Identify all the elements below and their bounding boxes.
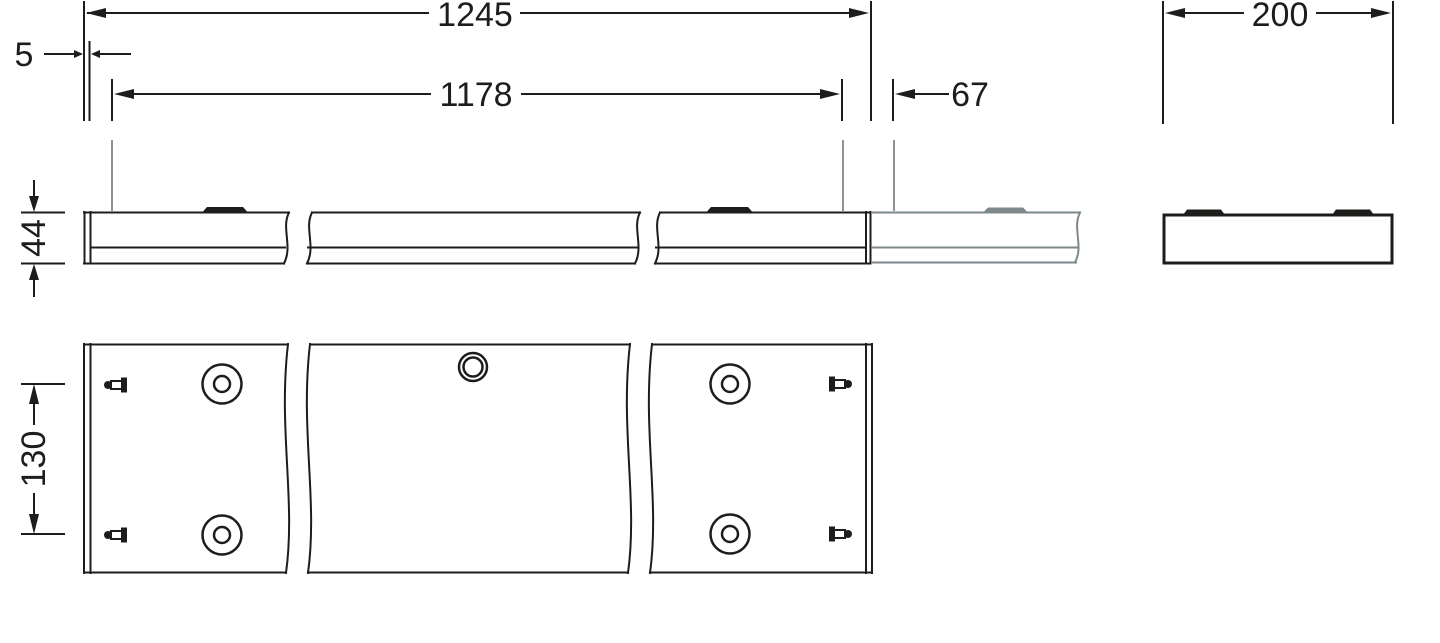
right-end-offset-label: 67: [951, 76, 989, 114]
keyhole-slot-bottom-right: [829, 527, 852, 542]
height-label: 44: [15, 219, 53, 257]
cable-entry-inner: [464, 358, 483, 377]
row-continuation-gray: [872, 208, 1080, 263]
overall-length-label: 1245: [437, 0, 513, 34]
suspension-distance-label: 1178: [439, 76, 512, 114]
technical-drawing-page: 1245 5 1178 67 200: [0, 0, 1440, 643]
arrowhead-up-icon: [29, 264, 39, 280]
top-clip-gray: [984, 208, 1027, 212]
keyhole-slot-bottom-left: [104, 528, 127, 543]
break-line-gray: [1075, 213, 1080, 263]
arrowhead-left-icon: [114, 89, 134, 99]
arrowhead-left-pointing-icon: [895, 89, 915, 99]
arrowhead-down-icon: [29, 514, 39, 534]
break-line: [649, 344, 653, 573]
suspension-hole-bottom-left: [203, 516, 242, 555]
dim-width: 200: [1163, 0, 1393, 123]
left-end-offset-label: 5: [15, 36, 34, 74]
arrowhead-right-icon: [849, 8, 869, 18]
cable-entry-hole: [459, 353, 487, 381]
break-line: [655, 213, 660, 264]
break-line: [284, 213, 289, 264]
width-label: 200: [1252, 0, 1309, 34]
break-line: [307, 344, 311, 573]
dim-height: 44: [15, 181, 64, 296]
dim-right-end-offset: 67: [893, 76, 989, 120]
arrowhead-right-icon: [1371, 8, 1391, 18]
arrowhead-right-icon: [820, 89, 840, 99]
housing-outline: [1164, 215, 1392, 263]
break-line: [635, 213, 640, 264]
dim-hole-spacing: 130: [15, 384, 64, 534]
suspension-hole-bottom-right: [711, 515, 750, 554]
top-clip-right: [707, 207, 752, 212]
top-clip-left: [203, 207, 247, 212]
keyhole-slot-top-right: [829, 377, 852, 392]
break-line: [285, 344, 289, 573]
arrowhead-left-icon: [86, 8, 106, 18]
end-view: [1164, 210, 1392, 264]
dim-suspension-distance: 1178: [112, 76, 842, 120]
keyhole-slot-top-left: [104, 378, 127, 393]
break-line: [307, 213, 312, 264]
arrowhead-left-icon: [1165, 8, 1185, 18]
arrowhead-right-pointing-icon: [74, 50, 83, 58]
arrowhead-left-pointing-icon: [91, 50, 100, 58]
break-line: [627, 344, 631, 573]
suspension-hole-top-right: [711, 365, 750, 404]
luminaire-dimension-drawing: 1245 5 1178 67 200: [0, 0, 1440, 643]
hole-spacing-label: 130: [15, 431, 53, 488]
suspension-hole-top-left: [203, 365, 242, 404]
plan-view: [84, 344, 872, 573]
arrowhead-down-icon: [29, 196, 39, 212]
arrowhead-up-icon: [29, 384, 39, 404]
side-view: [84, 140, 1080, 264]
